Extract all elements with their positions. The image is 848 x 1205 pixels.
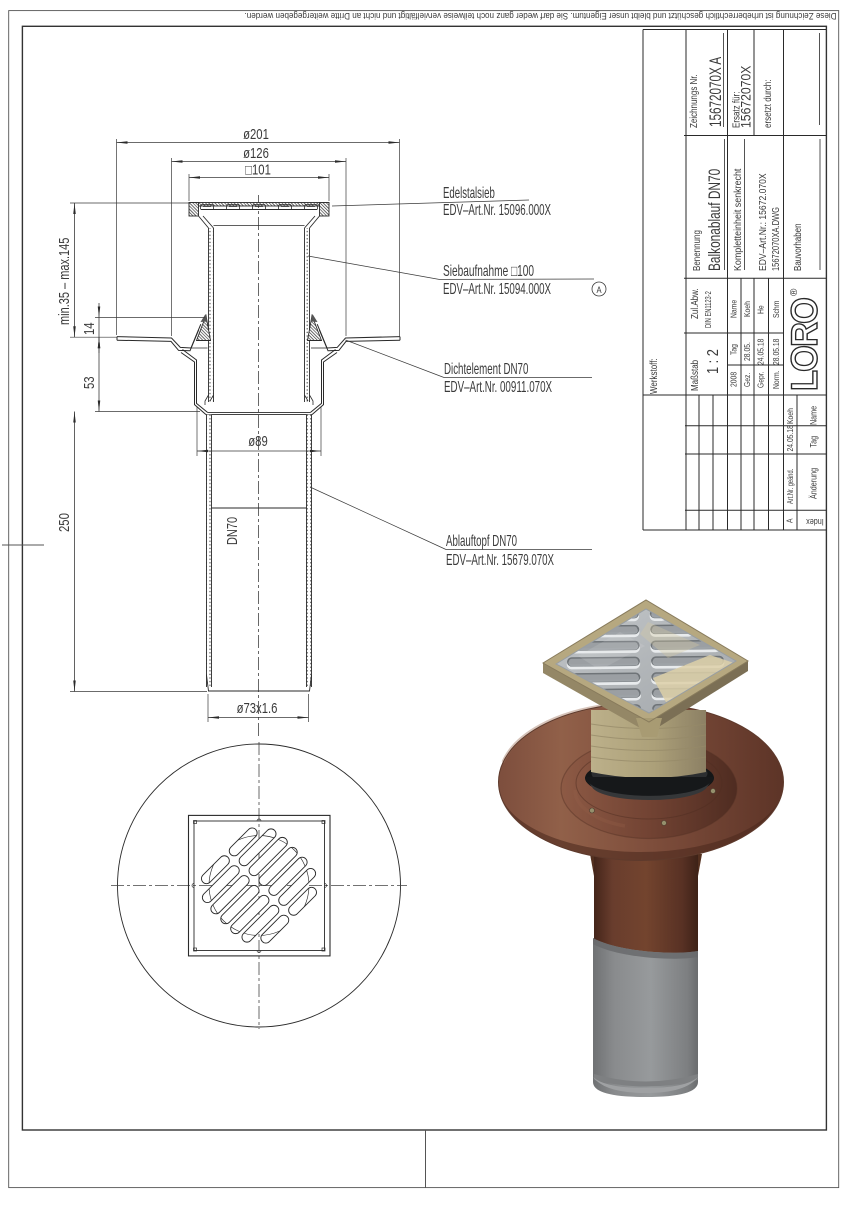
svg-text:Index: Index: [806, 517, 824, 527]
svg-text:Zul.Abw.: Zul.Abw.: [689, 288, 700, 319]
svg-text:Norm.: Norm.: [771, 371, 781, 389]
svg-text:Balkonablauf DN70: Balkonablauf DN70: [706, 169, 725, 271]
svg-text:DIN EN1123-2: DIN EN1123-2: [703, 291, 713, 328]
svg-text:A: A: [596, 284, 601, 295]
svg-text:Name: Name: [729, 300, 739, 318]
svg-text:15672070X A: 15672070X A: [707, 56, 726, 127]
svg-text:Änderung: Änderung: [808, 468, 819, 499]
svg-text:Dichtelement DN70: Dichtelement DN70: [444, 360, 529, 377]
svg-text:28.05.: 28.05.: [742, 342, 752, 361]
svg-text:53: 53: [81, 376, 98, 389]
svg-text:15672070XA.DWG: 15672070XA.DWG: [770, 207, 781, 271]
svg-text:Gez.: Gez.: [742, 373, 752, 387]
svg-text:Bauvorhaben: Bauvorhaben: [792, 223, 803, 271]
svg-text:Zeichnungs Nr.: Zeichnungs Nr.: [688, 74, 699, 128]
svg-text:Werkstoff:: Werkstoff:: [648, 358, 659, 394]
svg-text:28.05.18: 28.05.18: [771, 339, 781, 365]
svg-text:Tag: Tag: [809, 436, 819, 448]
svg-text:250: 250: [56, 513, 73, 532]
svg-text:Kompletteinheit senkrecht: Kompletteinheit senkrecht: [732, 168, 743, 271]
svg-text:1 : 2: 1 : 2: [705, 349, 723, 374]
svg-text:ø89: ø89: [248, 433, 267, 450]
svg-text:Gepr.: Gepr.: [756, 371, 766, 388]
svg-text:24.05.18: 24.05.18: [756, 339, 766, 365]
svg-text:Benennung: Benennung: [691, 230, 702, 271]
svg-text:24.05.18: 24.05.18: [785, 425, 795, 451]
svg-text:EDV–Art.Nr. 15679.070X: EDV–Art.Nr. 15679.070X: [446, 551, 554, 568]
svg-text:ø201: ø201: [243, 126, 269, 143]
svg-text:min.35 – max.145: min.35 – max.145: [56, 238, 73, 325]
svg-text:Koeh: Koeh: [785, 408, 795, 424]
svg-text:Koeh: Koeh: [742, 301, 752, 317]
svg-text:ø73x1.6: ø73x1.6: [237, 700, 278, 717]
svg-text:EDV–Art.Nr.: 15672.070X: EDV–Art.Nr.: 15672.070X: [757, 173, 768, 271]
svg-text:DN70: DN70: [224, 517, 241, 545]
svg-text:15672070X: 15672070X: [738, 65, 754, 128]
svg-text:Tag: Tag: [729, 344, 739, 355]
svg-text:Maßstab: Maßstab: [689, 360, 700, 391]
svg-text:ersetzt durch:: ersetzt durch:: [762, 80, 773, 128]
svg-text:Ablauftopf DN70: Ablauftopf DN70: [446, 532, 517, 549]
svg-text:He: He: [756, 305, 766, 314]
svg-text:Edelstalsieb: Edelstalsieb: [443, 184, 495, 201]
svg-text:Art.Nr. geänd.: Art.Nr. geänd.: [785, 469, 795, 504]
svg-text:EDV–Art.Nr. 15094.000X: EDV–Art.Nr. 15094.000X: [443, 280, 551, 297]
svg-text:LORO: LORO: [784, 298, 825, 391]
svg-text:Name: Name: [809, 405, 819, 425]
svg-text:®: ®: [789, 288, 800, 296]
svg-text:2008: 2008: [729, 372, 739, 387]
svg-text:ø126: ø126: [243, 145, 269, 162]
svg-text:EDV–Art.Nr. 00911.070X: EDV–Art.Nr. 00911.070X: [444, 378, 552, 395]
svg-text:EDV–Art.Nr. 15096.000X: EDV–Art.Nr. 15096.000X: [443, 201, 551, 218]
svg-text:14: 14: [81, 322, 98, 335]
svg-text:Diese Zeichnung ist urheberrec: Diese Zeichnung ist urheberrechtlich ges…: [245, 10, 837, 21]
svg-text:A: A: [785, 518, 795, 523]
svg-text:Schm: Schm: [771, 301, 781, 318]
svg-text:□101: □101: [245, 161, 271, 178]
svg-text:Siebaufnahme □100: Siebaufnahme □100: [443, 262, 534, 279]
